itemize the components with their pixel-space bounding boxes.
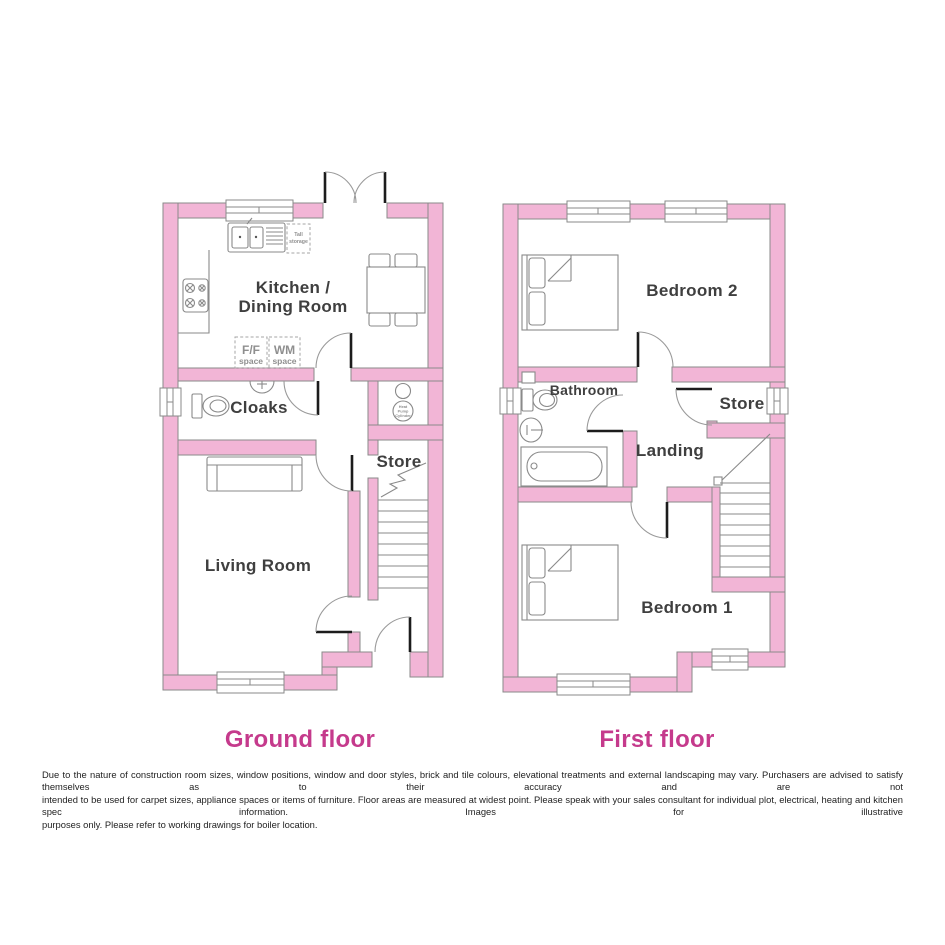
bathtub: [521, 447, 607, 486]
disclaimer-line-3: purposes only. Please refer to working d…: [42, 819, 903, 831]
first-store-label: Store: [720, 394, 765, 413]
first-doors: [587, 332, 712, 538]
first-floor-title: First floor: [537, 726, 777, 754]
tall-storage-label-1: Tall: [294, 232, 303, 238]
french-doors-icon: [325, 172, 385, 203]
store-door-icon: [676, 389, 712, 425]
washing-machine-space: WM space: [269, 337, 300, 368]
ground-stairs: [378, 463, 428, 588]
bed-bedroom2: [522, 255, 618, 330]
ff-label-1: F/F: [242, 343, 260, 357]
vestibule-door-icon: [316, 596, 352, 632]
window-bedroom2-right-icon: [665, 201, 727, 222]
bed-bedroom1: [522, 545, 618, 620]
window-cloaks-icon: [160, 388, 181, 416]
window-bedroom1-side-icon: [712, 649, 748, 670]
bathroom-door-icon: [587, 395, 623, 431]
window-bathroom-icon: [500, 388, 521, 414]
hob: [183, 279, 208, 312]
cloaks-toilet: [192, 394, 229, 418]
ground-floor-title: Ground floor: [180, 726, 420, 754]
bedroom2-label: Bedroom 2: [646, 281, 738, 300]
tall-storage-space: Tall storage: [287, 224, 310, 253]
fridge-freezer-space: F/F space: [235, 337, 267, 368]
ff-label-2: space: [239, 356, 263, 366]
disclaimer-line-2: intended to be used for carpet sizes, ap…: [42, 794, 903, 819]
cloaks-label: Cloaks: [230, 398, 288, 417]
dining-table: [367, 254, 425, 326]
bedroom1-label: Bedroom 1: [641, 598, 733, 617]
hpc-label-3: Cylinder: [395, 413, 411, 418]
disclaimer-line-1: Due to the nature of construction room s…: [42, 769, 903, 794]
first-floor-plan: Bedroom 2 Bathroom Store Landing Bedroom…: [500, 201, 788, 695]
kitchen-sink: [228, 218, 285, 252]
bathroom-label: Bathroom: [550, 382, 619, 398]
window-living-icon: [217, 672, 284, 693]
front-door-icon: [375, 617, 410, 652]
tall-storage-label-2: storage: [289, 239, 308, 245]
window-bedroom1-bottom-icon: [557, 674, 630, 695]
window-kitchen-icon: [226, 200, 293, 221]
first-stairs: [714, 434, 770, 567]
kitchen-door-icon: [316, 333, 351, 368]
living-room-label: Living Room: [205, 556, 311, 575]
disclaimer-text: Due to the nature of construction room s…: [42, 769, 903, 831]
cloaks-basin: [250, 381, 274, 393]
wm-label-1: WM: [274, 343, 295, 357]
kitchen-dining-label-1: Kitchen /: [256, 278, 331, 297]
bedroom1-door-icon: [631, 502, 667, 538]
cloaks-door-icon: [284, 381, 318, 415]
kitchen-dining-label-2: Dining Room: [238, 297, 347, 316]
floorplan-page: Tall storage F/F space WM space: [0, 0, 945, 945]
bathroom-basin: [520, 418, 543, 442]
sofa: [207, 457, 302, 491]
wm-label-2: space: [272, 356, 296, 366]
window-store-icon: [767, 388, 788, 414]
landing-label: Landing: [636, 441, 704, 460]
heat-pump-cylinder: Heat Pump Cylinder: [393, 384, 413, 422]
ground-floor-plan: Tall storage F/F space WM space: [160, 172, 443, 693]
living-room-door-icon: [316, 455, 352, 491]
ground-store-label: Store: [377, 452, 422, 471]
bedroom2-door-icon: [638, 332, 673, 367]
window-bedroom2-left-icon: [567, 201, 630, 222]
